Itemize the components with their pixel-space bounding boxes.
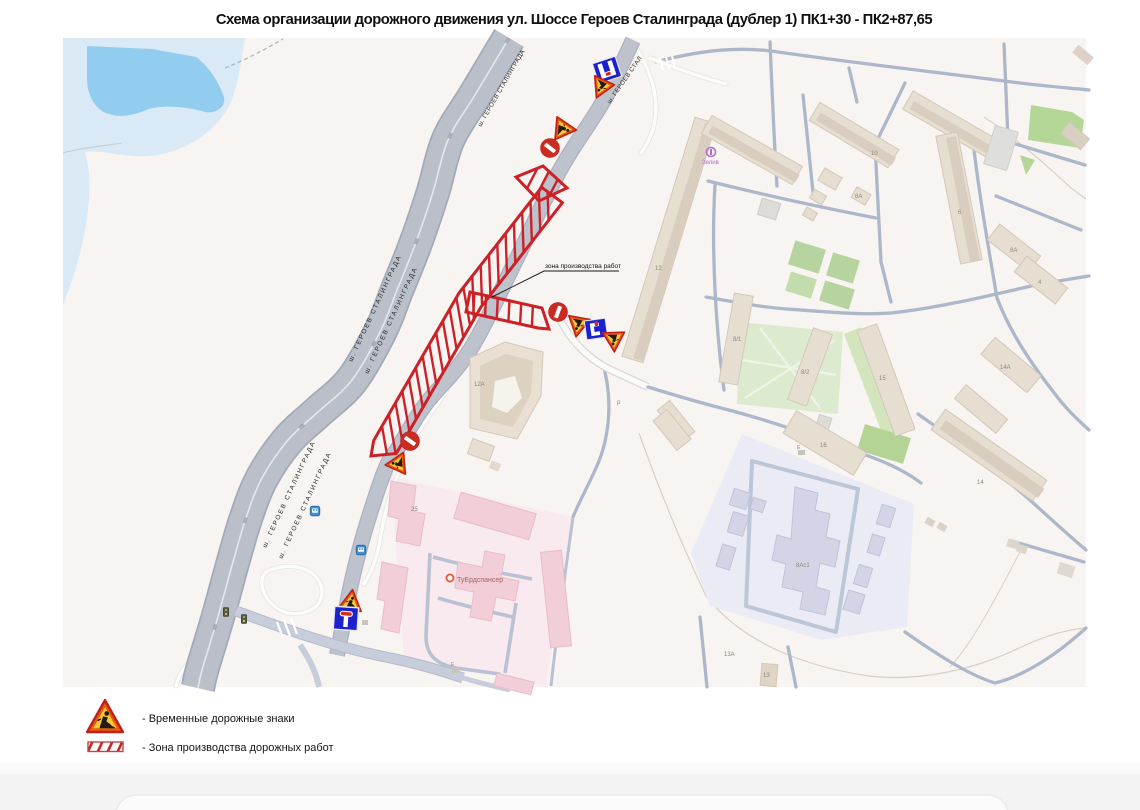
svg-text:14: 14: [977, 480, 984, 486]
svg-text:8/1: 8/1: [733, 337, 742, 343]
svg-text:25: 25: [411, 507, 418, 513]
svg-text:16: 16: [820, 443, 827, 449]
svg-text:10: 10: [871, 151, 878, 157]
svg-text:8А: 8А: [855, 194, 862, 200]
svg-text:- Зона производства дорожных р: - Зона производства дорожных работ: [142, 742, 334, 754]
svg-text:14А: 14А: [1000, 365, 1011, 371]
svg-text:8А: 8А: [1010, 248, 1017, 254]
svg-text:8Ас1: 8Ас1: [796, 563, 810, 569]
svg-text:зона производства работ: зона производства работ: [545, 262, 621, 270]
svg-text:ТуЕрдспансер: ТуЕрдспансер: [457, 577, 503, 584]
svg-text:12: 12: [655, 266, 662, 272]
svg-text:13: 13: [763, 673, 770, 679]
svg-text:- Временные дорожные знаки: - Временные дорожные знаки: [142, 713, 295, 725]
svg-text:Зелив: Зелив: [702, 160, 719, 166]
svg-text:Схема организации дорожного дв: Схема организации дорожного движения ул.…: [216, 12, 933, 28]
svg-text:15: 15: [879, 376, 886, 382]
svg-text:13А: 13А: [724, 652, 735, 658]
svg-text:12А: 12А: [474, 382, 485, 388]
svg-text:8/2: 8/2: [801, 370, 810, 376]
